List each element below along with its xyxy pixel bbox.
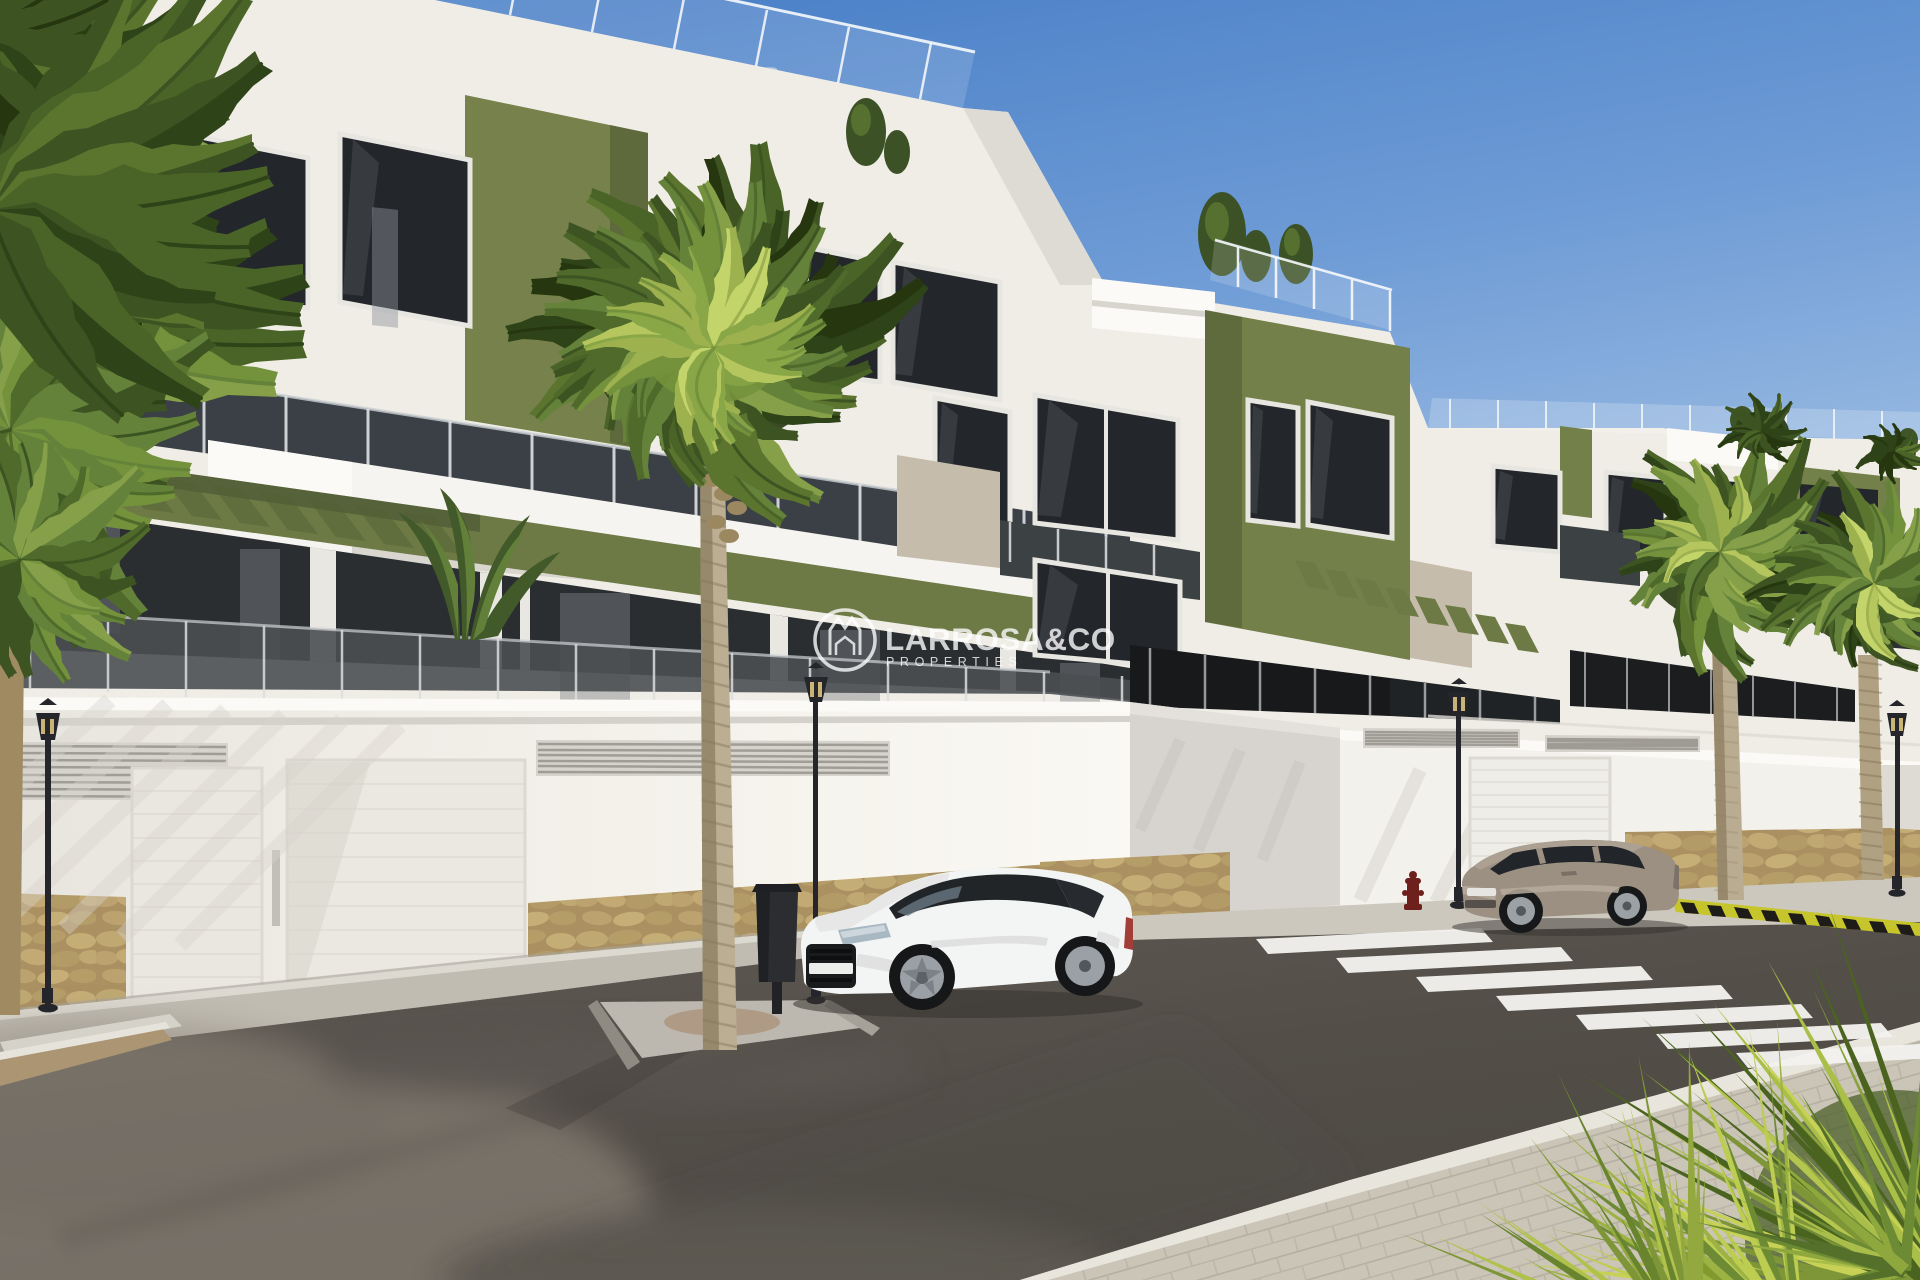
svg-text:PROPERTIES: PROPERTIES [886,655,1022,669]
svg-text:LARROSA&CO: LARROSA&CO [885,621,1116,657]
